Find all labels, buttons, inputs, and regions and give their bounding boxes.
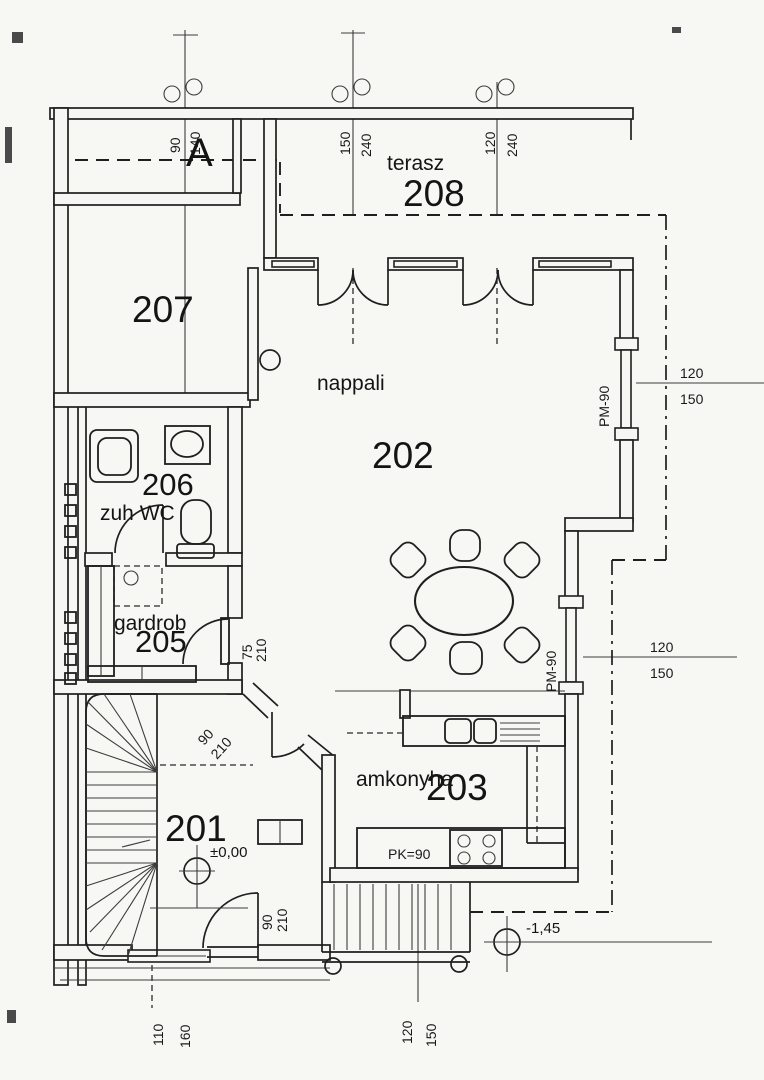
room-living-number: 202 [372, 435, 434, 476]
sink-icon [445, 719, 471, 743]
dim-win-bottomright-w: 120 [399, 1020, 415, 1044]
sink-icon [474, 719, 496, 743]
room-terrace-name: terasz [387, 152, 444, 175]
appliance-dashed-box [114, 566, 162, 606]
dim-win-right1-parapet: PM-90 [596, 386, 612, 427]
post-icon [325, 958, 341, 974]
dim-win-top1-w: 90 [167, 137, 183, 153]
dim-door-entry-w: 90 [259, 914, 275, 930]
room-bath-number: 206 [142, 467, 194, 502]
dining-set [387, 530, 543, 674]
dim-win-right2-w: 120 [650, 639, 674, 655]
dim-win-top3-w: 120 [482, 131, 498, 155]
dim-door-wardrobe-h: 210 [253, 638, 269, 662]
stairs-exterior [322, 882, 470, 974]
chair [387, 539, 429, 581]
dim-door-entry-h: 210 [274, 908, 290, 932]
dim-win-top2-h: 240 [358, 133, 374, 157]
dim-win-right1-w: 120 [680, 365, 704, 381]
chair [501, 624, 543, 666]
wardrobe-door-leaf [221, 618, 229, 664]
dining-table [415, 567, 513, 635]
room-terrace-number: 208 [403, 173, 465, 214]
dim-win-bottomright-h: 150 [423, 1023, 439, 1047]
dim-win-right2-h: 150 [650, 665, 674, 681]
window-markers-top [164, 79, 514, 102]
column-icon [260, 350, 280, 370]
dim-win-top2-w: 150 [337, 131, 353, 155]
dim-win-right2-parapet: PM-90 [543, 651, 559, 692]
kitchen-counter [403, 716, 565, 746]
room-bath-name: zuh WC [100, 502, 175, 525]
toilet-icon [181, 500, 211, 544]
room-labels: A terasz 208 207 nappali 202 206 zuh WC … [100, 131, 488, 849]
walls [50, 108, 638, 985]
room-neighbor-number: 207 [132, 289, 194, 330]
chair [450, 530, 480, 561]
chair [387, 622, 429, 664]
chair [501, 539, 543, 581]
post-icon [451, 956, 467, 972]
hall-door-arc [272, 744, 304, 757]
entry-door-arc [203, 893, 258, 948]
floor-plan: ±0,00 -1,45 A terasz 208 207 nappali 202… [0, 0, 764, 1080]
room-kitchen-number: 203 [426, 767, 488, 808]
dim-win-bottomleft-w: 110 [150, 1023, 166, 1046]
level-entry-label: -1,45 [526, 920, 560, 937]
chair [450, 642, 482, 674]
dim-win-top3-h: 240 [504, 133, 520, 157]
dim-win-bottomleft-h: 160 [177, 1024, 193, 1048]
dim-win-right1-h: 150 [680, 391, 704, 407]
stairs-interior [86, 694, 157, 956]
dim-win-top1-h: 140 [187, 131, 203, 155]
terrace-doors [318, 270, 533, 305]
room-hall-number: 201 [165, 808, 227, 849]
level-marker-entry: -1,45 [484, 916, 712, 972]
dim-kitchen-counter: PK=90 [388, 846, 431, 862]
room-wardrobe-number: 205 [135, 624, 187, 659]
room-living-name: nappali [317, 372, 385, 395]
